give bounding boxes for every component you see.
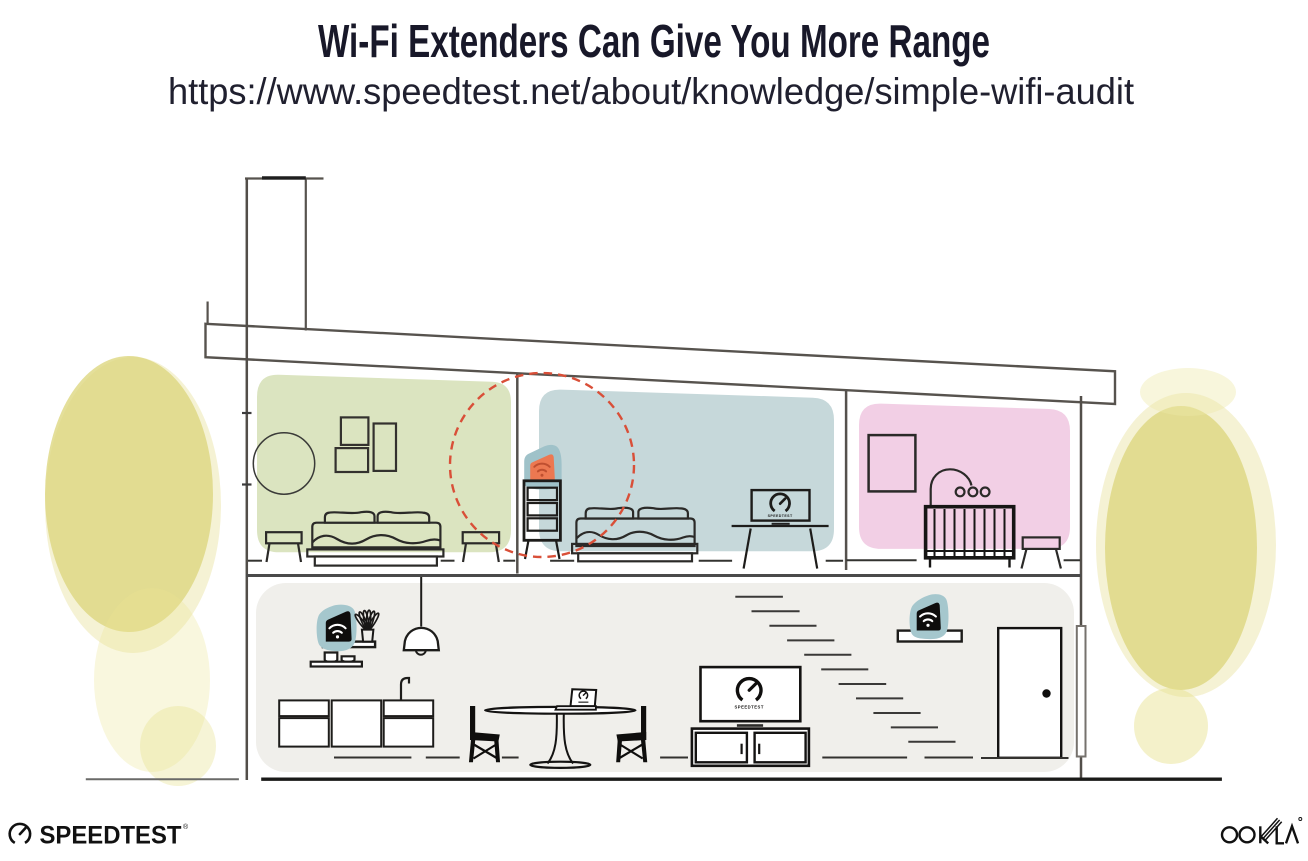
svg-text:https://www.speedtest.net/abou: https://www.speedtest.net/about/knowledg…	[168, 71, 1135, 112]
svg-text:®: ®	[183, 823, 189, 831]
svg-text:SPEEDTEST: SPEEDTEST	[734, 705, 763, 710]
svg-text:SPEEDTEST: SPEEDTEST	[40, 821, 182, 849]
svg-text:Wi-Fi Extenders Can Give You M: Wi-Fi Extenders Can Give You More Range	[318, 15, 990, 67]
svg-text:SPEEDTEST: SPEEDTEST	[768, 514, 793, 518]
